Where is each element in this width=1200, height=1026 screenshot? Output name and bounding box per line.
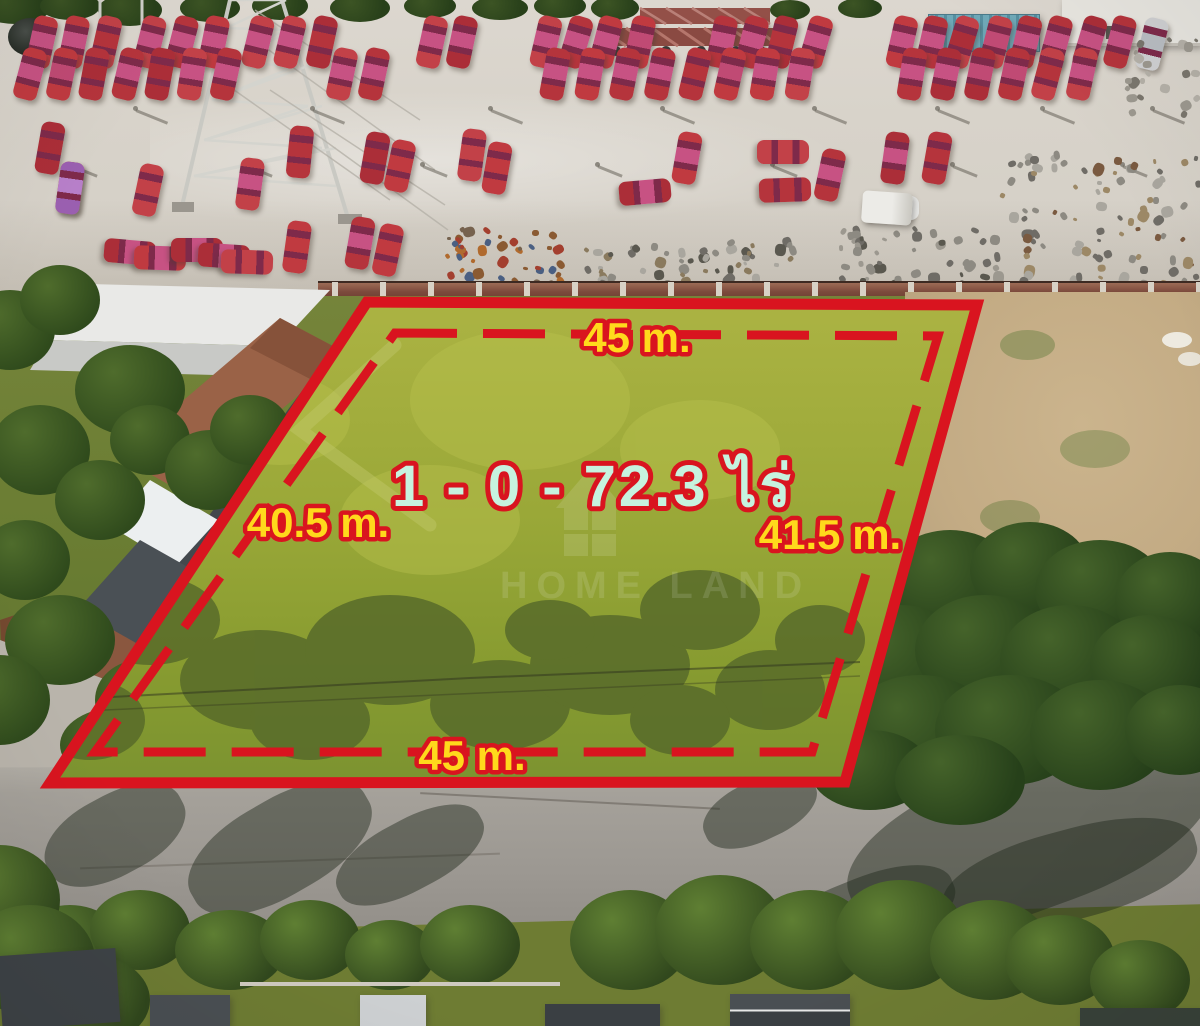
plot-tree-patch — [630, 685, 730, 755]
plot-tree-patch — [505, 600, 595, 660]
area-label: 1 - 0 - 72.3 ไร่ — [392, 453, 794, 519]
watermark-text: HOME LAND — [500, 565, 811, 607]
land-plot-overlay: HOME LAND 45 m. 40.5 m. 41.5 m. 45 m. 1 … — [0, 0, 1200, 1026]
dim-label-left: 40.5 m. — [247, 499, 389, 546]
dim-label-top: 45 m. — [583, 314, 690, 361]
aerial-land-photo: HOME LAND 45 m. 40.5 m. 41.5 m. 45 m. 1 … — [0, 0, 1200, 1026]
dim-label-bottom: 45 m. — [418, 732, 525, 779]
